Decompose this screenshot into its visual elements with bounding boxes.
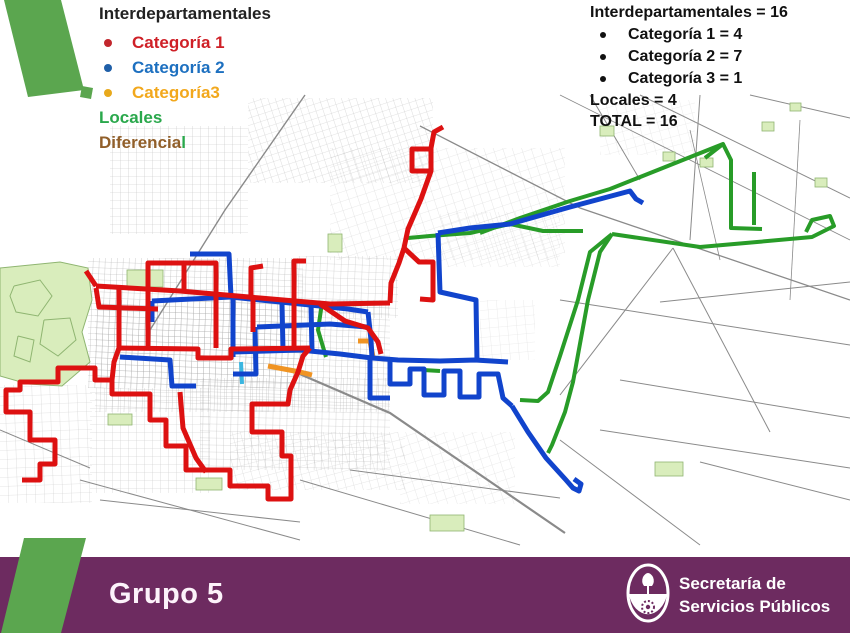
legend-item-diferencial: Diferencial [99,130,271,155]
legend-item-categoria-3: Categoría3 [99,80,271,105]
stats-line-1: TOTAL = 16 [590,111,788,132]
legend-item-categoria-2: Categoría 2 [99,55,271,80]
park-area [196,478,222,490]
street-grid [0,385,92,503]
legend-label-categoria-2: Categoría 2 [132,58,225,78]
street-grid [400,432,515,504]
legend-bullet-categoria-1 [104,39,112,47]
legend-item-categoria-1: Categoría 1 [99,30,271,55]
legend-label-locales: Locales [99,108,162,128]
logo-lower-half [629,595,667,614]
park-area [655,462,683,476]
stats-bullet-dot [600,76,606,82]
route-categoria2 [282,304,283,350]
group-title: Grupo 5 [109,578,224,611]
road [700,462,850,500]
legend-items: Categoría 1Categoría 2Categoría3LocalesD… [99,30,271,155]
legend-bullet-categoria-2 [104,64,112,72]
legend-label-categoria-3: Categoría3 [132,83,220,103]
stats-bullet-label: Categoría 3 = 1 [628,70,742,88]
slide: Interdepartamentales Categoría 1Categorí… [0,0,850,633]
green-band-top-left [0,0,110,105]
map-legend: Interdepartamentales Categoría 1Categorí… [99,2,271,155]
legend-label-diferencial: Diferencia [99,133,181,153]
park-area [430,515,464,531]
stats-lines: Locales = 4TOTAL = 16 [590,90,788,132]
org-line1: Secretaría de [679,572,830,595]
route-stats: Interdepartamentales = 16 Categoría 1 = … [590,2,788,132]
street-grid [230,432,405,490]
org-name: Secretaría de Servicios Públicos [679,572,830,618]
route-categoria2 [390,360,512,406]
stats-bullet-row-0: Categoría 1 = 4 [590,24,788,46]
stats-line-0: Locales = 4 [590,90,788,111]
road [620,380,850,418]
stats-title: Interdepartamentales = 16 [590,4,788,22]
legend-item-locales: Locales [99,105,271,130]
park-area [815,178,827,187]
stats-bullet-row-2: Categoría 3 = 1 [590,68,788,90]
road [100,500,300,522]
org-line2: Servicios Públicos [679,595,830,618]
legend-title: Interdepartamentales [99,4,271,24]
stats-bullet-dot [600,54,606,60]
road [673,248,770,432]
stats-bullet-label: Categoría 2 = 7 [628,48,742,66]
logo-cap-icon [642,573,654,586]
road [600,430,850,468]
legend-label-categoria-1: Categoría 1 [132,33,225,53]
road [660,282,850,302]
park-area [108,414,132,425]
stats-bullet-dot [600,32,606,38]
street-grid [480,300,535,360]
legend-label-suffix-diferencial: l [181,133,186,153]
road [560,248,673,395]
road [790,120,800,300]
park-area [790,103,801,111]
stats-bullet-row-1: Categoría 2 = 7 [590,46,788,68]
secretaria-logo [622,559,674,627]
park-area [127,270,163,287]
park-area [328,234,342,252]
park-area [663,152,675,161]
route-locales [612,216,834,247]
street-grid [440,212,560,267]
stats-bullet-label: Categoría 1 = 4 [628,26,742,44]
legend-bullet-categoria-3 [104,89,112,97]
stats-bullets: Categoría 1 = 4Categoría 2 = 7Categoría … [590,24,788,90]
route-categoria2 [311,306,312,350]
